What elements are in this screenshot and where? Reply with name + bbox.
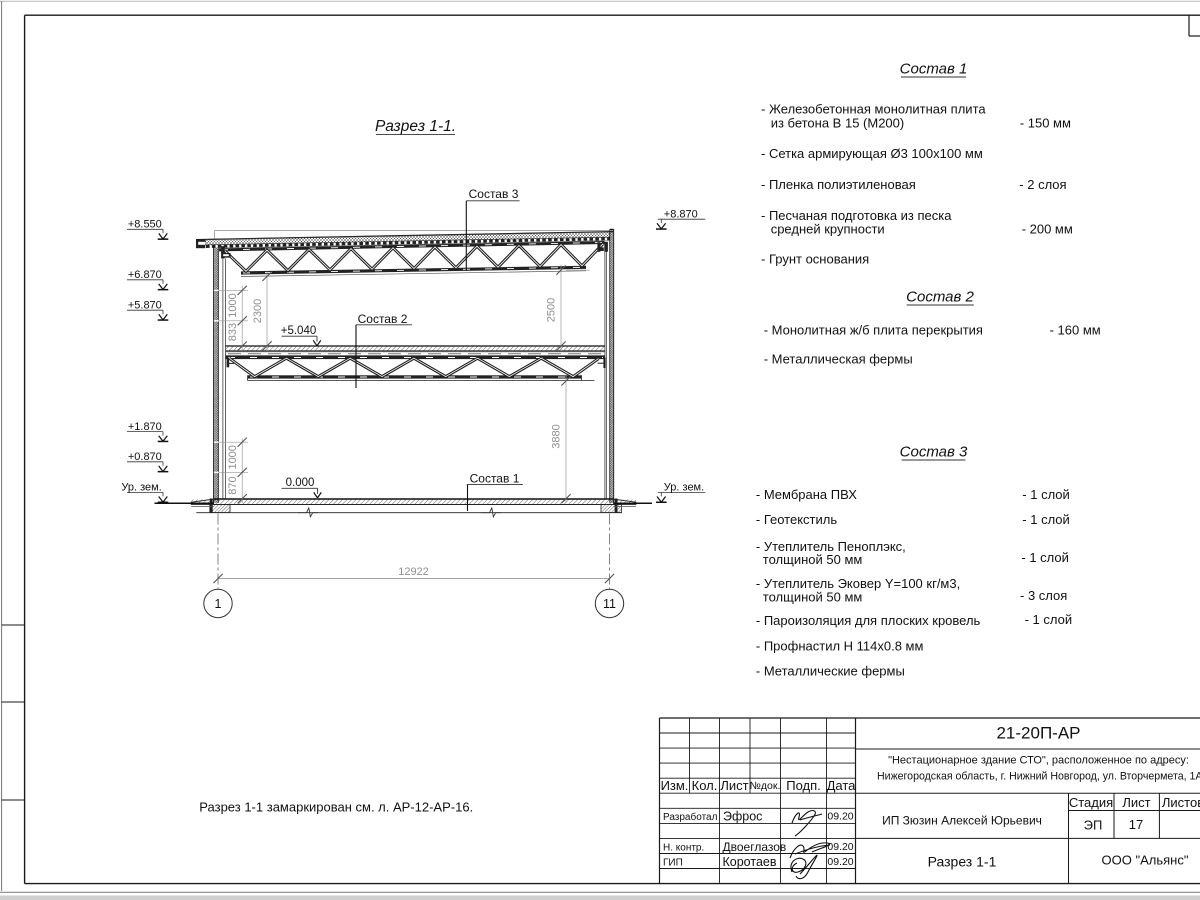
svg-text:- Металлическая фермы: - Металлическая фермы xyxy=(764,352,913,367)
svg-text:ЭП: ЭП xyxy=(1084,818,1103,833)
svg-text:- Металлические фермы: - Металлические фермы xyxy=(756,663,905,678)
svg-text:+1.870: +1.870 xyxy=(128,421,162,433)
svg-text:Стадия: Стадия xyxy=(1069,795,1113,810)
svg-text:- 2 слоя: - 2 слоя xyxy=(1019,177,1066,192)
svg-text:12922: 12922 xyxy=(398,566,429,578)
svg-text:- 1 слой: - 1 слой xyxy=(1022,487,1070,502)
svg-text:1000: 1000 xyxy=(227,293,239,317)
svg-text:+8.550: +8.550 xyxy=(128,219,162,231)
svg-text:21-20П-АР: 21-20П-АР xyxy=(996,724,1080,743)
svg-text:толщиной 50 мм: толщиной 50 мм xyxy=(763,552,863,567)
svg-text:№док.: №док. xyxy=(750,780,781,792)
svg-text:- Мембрана ПВХ: - Мембрана ПВХ xyxy=(756,487,857,502)
svg-text:1: 1 xyxy=(215,597,222,611)
svg-text:- Сетка армирующая Ø3 100х100: - Сетка армирующая Ø3 100х100 мм xyxy=(761,146,983,161)
svg-text:09.20: 09.20 xyxy=(827,856,853,868)
svg-text:- Железобетонная монолитная п: - Железобетонная монолитная плита xyxy=(761,102,986,117)
svg-text:Ур. зем.: Ур. зем. xyxy=(664,482,704,494)
svg-text:- Геотекстиль: - Геотекстиль xyxy=(756,512,837,527)
svg-text:17: 17 xyxy=(1129,817,1143,832)
svg-text:Разрез 1-1 замаркирован см. л.: Разрез 1-1 замаркирован см. л. АР-12-АР-… xyxy=(199,800,473,815)
svg-text:- 3 слоя: - 3 слоя xyxy=(1020,588,1067,603)
svg-text:Состав 1: Состав 1 xyxy=(900,61,968,78)
svg-text:2300: 2300 xyxy=(252,299,264,323)
svg-text:Нижегородская область, г. Нижн: Нижегородская область, г. Нижний Новгоро… xyxy=(877,771,1200,783)
svg-text:Подп.: Подп. xyxy=(786,778,821,793)
svg-text:11: 11 xyxy=(603,597,616,611)
svg-text:- Профнастил Н 114х0.8 мм: - Профнастил Н 114х0.8 мм xyxy=(756,639,924,654)
svg-text:- Монолитная ж/б плита перекры: - Монолитная ж/б плита перекрытия xyxy=(764,323,983,338)
svg-text:толщиной 50 мм: толщиной 50 мм xyxy=(763,589,863,604)
svg-text:- Пленка полиэтиленовая: - Пленка полиэтиленовая xyxy=(761,177,916,192)
svg-text:Состав 3: Состав 3 xyxy=(900,444,968,461)
svg-text:ООО "Альянс": ООО "Альянс" xyxy=(1102,853,1189,868)
svg-text:"Нестационарное здание СТО", р: "Нестационарное здание СТО", расположенн… xyxy=(888,755,1189,767)
svg-text:Ур. зем.: Ур. зем. xyxy=(121,482,161,494)
svg-text:Коротаев: Коротаев xyxy=(723,855,777,869)
svg-text:Разработал: Разработал xyxy=(663,811,718,823)
svg-text:09.20: 09.20 xyxy=(827,841,853,853)
svg-text:- 1 слой: - 1 слой xyxy=(1025,612,1073,627)
svg-text:Двоеглазов: Двоеглазов xyxy=(723,840,787,854)
svg-text:- 1 слой: - 1 слой xyxy=(1022,512,1070,527)
svg-text:из бетона В 15 (М200): из бетона В 15 (М200) xyxy=(771,115,905,130)
svg-text:Эфрос: Эфрос xyxy=(723,810,762,824)
svg-text:09.20: 09.20 xyxy=(827,811,853,823)
svg-text:1000: 1000 xyxy=(227,445,239,469)
svg-text:ГИП: ГИП xyxy=(663,858,683,869)
svg-text:Разрез 1-1.: Разрез 1-1. xyxy=(375,118,456,135)
svg-text:- Грунт основания: - Грунт основания xyxy=(761,252,869,267)
svg-text:Изм.: Изм. xyxy=(661,778,689,793)
svg-text:- 150 мм: - 150 мм xyxy=(1020,115,1071,130)
svg-text:- 200 мм: - 200 мм xyxy=(1022,222,1073,237)
svg-text:- Песчаная подготовка из песка: - Песчаная подготовка из песка xyxy=(761,208,952,223)
svg-text:Разрез 1-1: Разрез 1-1 xyxy=(928,854,997,870)
svg-text:833: 833 xyxy=(227,323,239,341)
svg-text:Кол.: Кол. xyxy=(692,778,718,793)
svg-text:3880: 3880 xyxy=(551,424,563,448)
svg-text:- 1 слой: - 1 слой xyxy=(1021,550,1069,565)
svg-text:Дата: Дата xyxy=(827,778,857,793)
svg-text:0.000: 0.000 xyxy=(286,477,315,489)
svg-text:+5.040: +5.040 xyxy=(281,325,317,337)
svg-text:Н. контр.: Н. контр. xyxy=(663,843,704,854)
svg-text:Состав 3: Состав 3 xyxy=(469,187,519,201)
svg-text:+5.870: +5.870 xyxy=(128,299,162,311)
svg-text:- Пароизоляция для плоских кро: - Пароизоляция для плоских кровель xyxy=(756,613,981,628)
svg-text:+8.870: +8.870 xyxy=(664,208,698,220)
svg-text:870: 870 xyxy=(227,476,239,494)
svg-text:Состав 1: Состав 1 xyxy=(470,471,520,485)
svg-text:Состав 2: Состав 2 xyxy=(358,312,408,326)
svg-text:+0.870: +0.870 xyxy=(128,451,162,463)
svg-text:- 160 мм: - 160 мм xyxy=(1050,323,1101,338)
svg-text:ИП Зюзин Алексей Юрьевич: ИП Зюзин Алексей Юрьевич xyxy=(882,814,1042,828)
svg-text:Состав 2: Состав 2 xyxy=(906,289,974,306)
svg-text:средней крупности: средней крупности xyxy=(771,222,885,237)
svg-text:Лист: Лист xyxy=(1122,795,1150,810)
svg-text:+6.870: +6.870 xyxy=(128,269,162,281)
svg-text:2500: 2500 xyxy=(546,298,558,322)
svg-text:Листов: Листов xyxy=(1162,795,1200,810)
svg-text:Лист: Лист xyxy=(720,778,748,793)
